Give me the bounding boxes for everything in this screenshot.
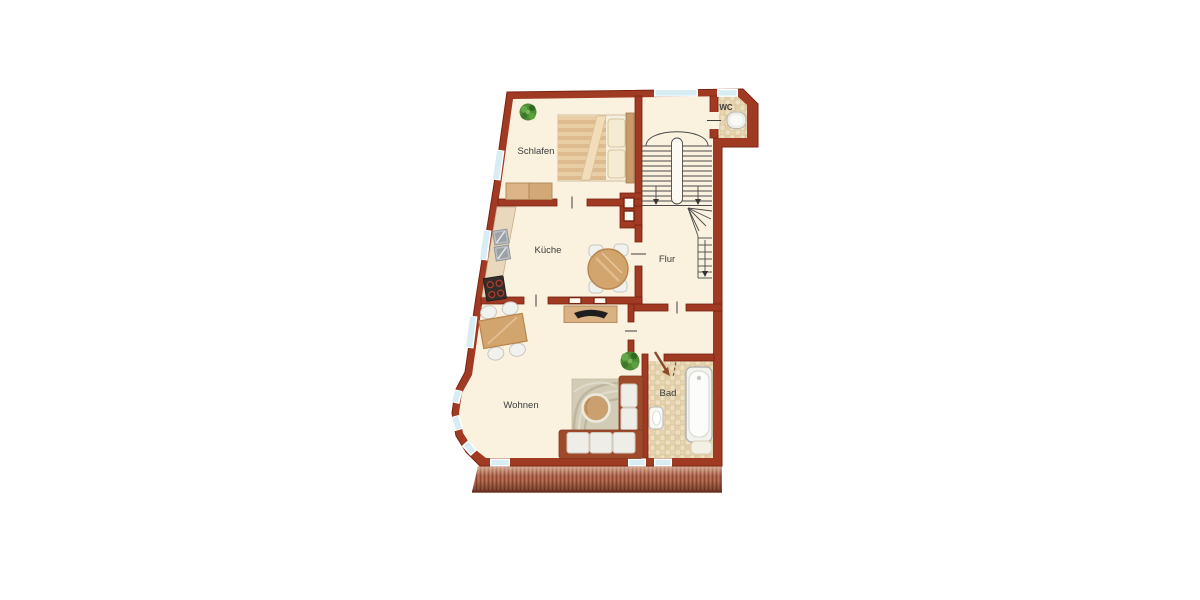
room-label-kueche: Küche [535,245,562,256]
pillow [608,119,625,147]
window-schlafen [496,150,500,180]
room-label-flur: Flur [659,254,675,265]
toilet [727,112,746,129]
stair-rail [672,138,683,204]
round-dining-table-group [588,244,628,293]
room-label-wohnen: Wohnen [503,400,538,411]
wall-flur-hall-b [686,304,722,311]
terrace-edge [472,491,722,493]
bed-duvet [558,116,606,180]
wall-bad-top [664,354,714,361]
wall-kueche-flur-a [635,225,642,242]
washbasin [649,407,663,429]
room-label-wc: WC [719,103,733,112]
window-kueche [483,230,487,260]
window-top-stairs [654,89,698,97]
stove [483,276,506,302]
double-bed [558,113,634,183]
floor-plan: Schlafen Küche Flur WC Wohnen Bad [0,0,1200,600]
room-label-bad: Bad [660,388,677,399]
plant-schlafen [520,104,537,121]
window-wc [717,89,738,97]
window-bottom-bad-1 [628,458,646,466]
wall-flur-hall-a [634,304,668,311]
window-wohnen-left [469,316,473,348]
wall-schlafen-kueche-a [498,199,557,206]
terrace-deck [472,466,722,493]
bathtub [686,367,712,442]
headboard [626,113,634,183]
room-label-schlafen: Schlafen [518,146,555,157]
window-bottom-bad-2 [654,458,672,466]
bath-mat [691,441,712,454]
window-bottom-wohnen [490,458,510,466]
tv-sideboard [564,306,617,323]
wall-wohnen-hall-a [628,304,634,322]
bathtub-drain [697,376,701,380]
floor-plan-page: Schlafen Küche Flur WC Wohnen Bad [0,0,1200,600]
wall-schlafen-stairs [635,96,642,196]
bedroom-dresser [506,183,552,200]
plant-wohnen [621,352,640,371]
pillow [608,150,625,178]
